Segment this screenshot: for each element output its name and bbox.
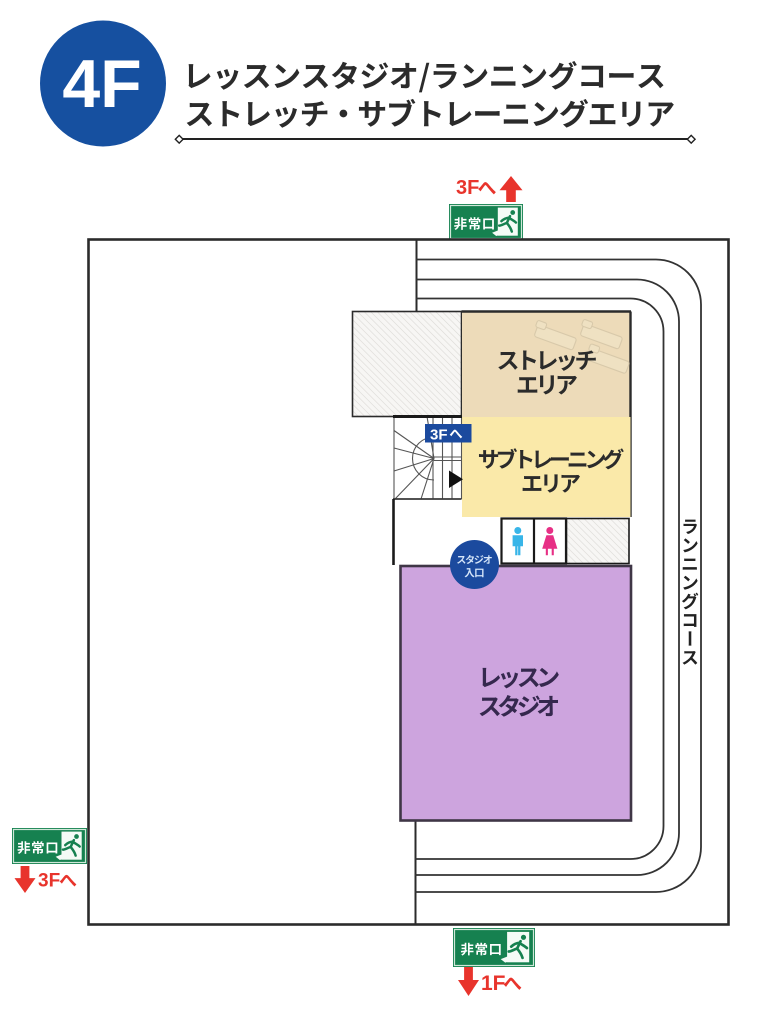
svg-text:3F: 3F [38, 871, 60, 892]
svg-text:4F: 4F [62, 46, 141, 122]
svg-text:3F: 3F [430, 427, 448, 444]
svg-text:3F: 3F [456, 177, 479, 199]
svg-text:1F: 1F [481, 972, 506, 995]
